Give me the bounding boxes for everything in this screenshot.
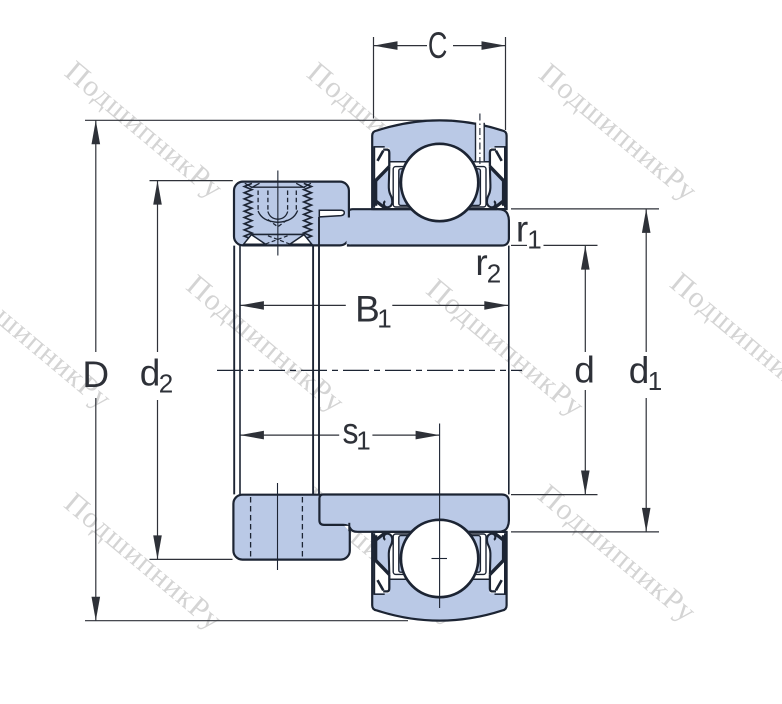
svg-text:C: C bbox=[428, 25, 448, 66]
svg-text:1: 1 bbox=[377, 304, 391, 334]
svg-text:d: d bbox=[140, 353, 161, 394]
svg-text:2: 2 bbox=[159, 369, 173, 399]
svg-text:1: 1 bbox=[527, 225, 541, 255]
svg-text:2: 2 bbox=[487, 259, 501, 289]
svg-text:D: D bbox=[82, 354, 109, 395]
svg-text:d: d bbox=[574, 350, 595, 391]
svg-text:1: 1 bbox=[648, 366, 662, 396]
svg-text:1: 1 bbox=[356, 426, 370, 456]
svg-text:d: d bbox=[629, 350, 650, 391]
svg-text:B: B bbox=[355, 288, 380, 329]
